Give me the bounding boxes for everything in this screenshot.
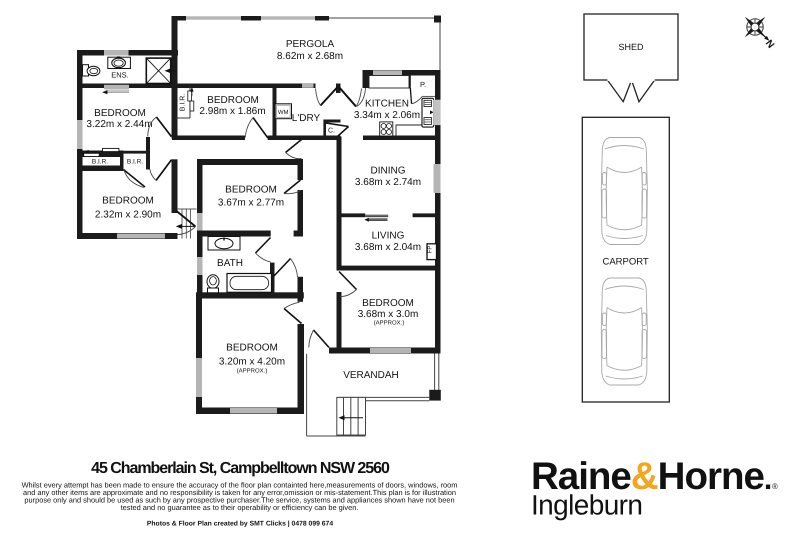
- svg-text:LIVING: LIVING: [372, 231, 405, 242]
- svg-text:L'DRY: L'DRY: [292, 113, 321, 124]
- svg-text:WM: WM: [278, 109, 289, 116]
- svg-text:P.: P.: [420, 80, 426, 89]
- svg-text:BATH: BATH: [217, 258, 243, 269]
- svg-text:BEDROOM: BEDROOM: [225, 185, 277, 196]
- svg-text:8.62m x 2.68m: 8.62m x 2.68m: [277, 51, 343, 62]
- svg-text:BEDROOM: BEDROOM: [207, 95, 259, 106]
- svg-text:®: ®: [772, 482, 778, 491]
- svg-text:BEDROOM: BEDROOM: [102, 196, 154, 207]
- svg-text:C.: C.: [328, 128, 335, 135]
- svg-text:PERGOLA: PERGOLA: [286, 39, 335, 50]
- svg-text:KITCHEN: KITCHEN: [365, 99, 409, 110]
- svg-text:45 Chamberlain St, Campbelltow: 45 Chamberlain St, Campbelltown NSW 2560: [91, 460, 390, 477]
- svg-text:VERANDAH: VERANDAH: [343, 370, 399, 381]
- svg-text:FP: FP: [427, 246, 434, 254]
- svg-text:BEDROOM: BEDROOM: [362, 298, 414, 309]
- svg-text:Ingleburn: Ingleburn: [531, 490, 642, 521]
- svg-text:2.32m x 2.90m: 2.32m x 2.90m: [95, 210, 161, 221]
- svg-text:DINING: DINING: [371, 166, 406, 177]
- svg-text:B.I.R.: B.I.R.: [179, 94, 186, 112]
- svg-text:3.67m x 2.77m: 3.67m x 2.77m: [218, 198, 284, 209]
- svg-text:N: N: [763, 38, 776, 50]
- svg-text:3.68m x 2.74m: 3.68m x 2.74m: [355, 177, 421, 188]
- svg-text:SHED: SHED: [618, 42, 644, 52]
- svg-text:CARPORT: CARPORT: [602, 257, 648, 268]
- svg-text:ENS.: ENS.: [111, 71, 129, 80]
- svg-text:(APPROX.): (APPROX.): [374, 319, 405, 326]
- svg-text:Photos & Floor Plan created by: Photos & Floor Plan created by SMT Click…: [147, 521, 333, 528]
- svg-text:3.20m x 4.20m: 3.20m x 4.20m: [219, 357, 285, 368]
- svg-text:tested and no guarantee as to: tested and no guarantee as to their oper…: [121, 503, 359, 512]
- svg-text:B.I.R.: B.I.R.: [127, 159, 143, 166]
- svg-text:BEDROOM: BEDROOM: [226, 343, 278, 354]
- svg-text:BEDROOM: BEDROOM: [94, 108, 146, 119]
- svg-text:3.34m x 2.06m: 3.34m x 2.06m: [354, 110, 420, 121]
- svg-text:3.68m x 2.04m: 3.68m x 2.04m: [355, 242, 421, 253]
- svg-text:2.98m x 1.86m: 2.98m x 1.86m: [199, 106, 265, 117]
- svg-text:(APPROX.): (APPROX.): [237, 368, 268, 375]
- svg-text:3.68m x 3.0m: 3.68m x 3.0m: [358, 309, 419, 320]
- svg-text:B.I.R.: B.I.R.: [92, 159, 108, 166]
- svg-text:3.22m x 2.44m: 3.22m x 2.44m: [86, 119, 152, 130]
